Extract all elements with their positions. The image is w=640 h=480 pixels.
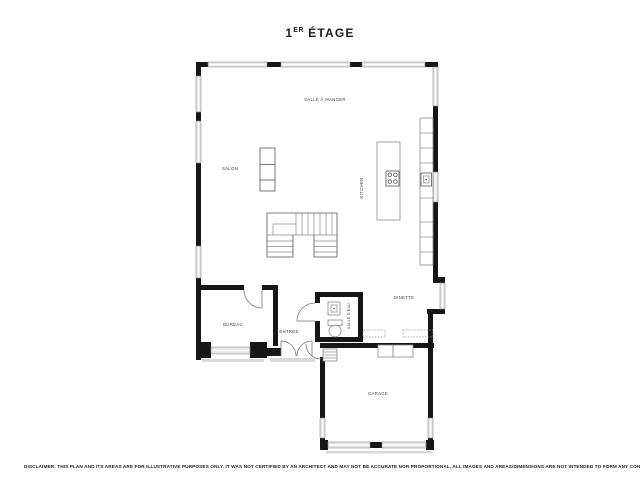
fireplace-icon <box>260 148 275 191</box>
entry-double-door-icon <box>281 341 312 356</box>
kitchen-island <box>377 142 400 220</box>
bureau-door-icon <box>244 290 262 308</box>
bathroom-door-icon <box>297 303 315 321</box>
garage-storage <box>378 345 413 357</box>
room-label-garage: GARAGE <box>368 391 388 396</box>
room-label-salle-a-manger: SALLE À MANGER <box>304 97 346 102</box>
disclaimer-text: DISCLAIMER: THIS PLAN AND ITS AREAS ARE … <box>24 464 624 469</box>
room-label-dinette: DINETTE <box>394 295 414 300</box>
title-text: ÉTAGE <box>308 26 354 40</box>
room-label-salle-deau: SALLE D'EAU <box>347 303 351 329</box>
room-label-entree: ENTRÉE <box>279 329 298 334</box>
dinette-cabinets <box>363 330 433 337</box>
staircase <box>267 213 337 257</box>
room-label-bureau: BUREAU <box>223 322 243 327</box>
walls <box>196 62 445 450</box>
kitchen-counter <box>420 118 433 265</box>
bathroom-fixtures <box>328 302 342 337</box>
floor-plan-drawing: SALLE À MANGER SALON KITCHEN DINETTE BUR… <box>0 0 640 480</box>
entry-threshold <box>270 358 315 362</box>
page-title: 1ERÉTAGE <box>0 26 640 40</box>
garage-entry-door-icon <box>306 344 321 359</box>
toilet-icon <box>328 320 342 337</box>
room-label-kitchen: KITCHEN <box>359 178 364 199</box>
garage-steps <box>323 349 337 361</box>
title-superscript: ER <box>293 27 304 34</box>
bathroom-sink-icon <box>328 302 340 315</box>
garage-threshold <box>326 451 432 454</box>
porch-step <box>202 359 264 362</box>
floor-plan-page: 1ERÉTAGE <box>0 0 640 480</box>
room-label-salon: SALON <box>222 166 238 171</box>
